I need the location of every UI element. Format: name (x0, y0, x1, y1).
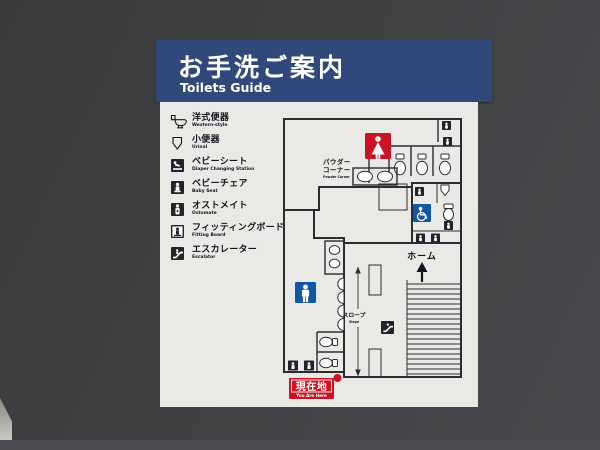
sign-title-japanese: お手洗ご案内 (178, 48, 346, 84)
up-arrow-icon (417, 262, 428, 282)
legend-label: オストメイト Ostomate (192, 202, 248, 217)
powder-corner-label-line1: パウダー (323, 157, 351, 166)
powder-corner-label-en: Powder Corner (323, 175, 350, 179)
legend-item-diaper-changing: ベビーシート Diaper Changing Station (170, 158, 288, 173)
legend-label: フィッティングボード Fitting Board (192, 224, 284, 239)
legend-label-en: Western-style (192, 124, 229, 129)
sign-header: お手洗ご案内 Toilets Guide (156, 40, 492, 102)
baby-seat-icon (415, 187, 424, 196)
sign-board: 洋式便器 Western-style 小便器 Urinal ベビーシート (160, 102, 478, 407)
womens-toilet-fixture (417, 154, 428, 175)
woman-icon (365, 133, 391, 159)
legend-label-ja: フィッティングボード (192, 224, 284, 233)
you-are-here-dot (334, 374, 342, 382)
fitting-board-icon (442, 121, 451, 130)
legend-label-ja: エスカレーター (192, 246, 257, 255)
diaper-changing-icon (170, 158, 189, 173)
western-toilet-icon (170, 114, 189, 129)
toilets-guide-sign-photo: お手洗ご案内 Toilets Guide 洋式便器 Western-style (0, 0, 600, 450)
womens-toilet-fixture (440, 154, 451, 175)
legend-item-fitting-board: フィッティングボード Fitting Board (170, 224, 288, 239)
fitting-board-icon (288, 361, 298, 371)
accessible-toilet-fixture (444, 204, 454, 221)
baby-seat-icon (304, 361, 314, 371)
legend-label: 小便器 Urinal (192, 136, 220, 151)
fitting-board-icon (170, 224, 189, 239)
mens-toilet-fixture (320, 358, 338, 368)
legend: 洋式便器 Western-style 小便器 Urinal ベビーシート (170, 114, 288, 268)
ostomate-icon (170, 202, 189, 217)
legend-label-en: Ostomate (192, 212, 248, 217)
ostomate-icon (443, 137, 452, 146)
legend-label: 洋式便器 Western-style (192, 114, 229, 129)
legend-item-ostomate: オストメイト Ostomate (170, 202, 288, 217)
legend-label-ja: オストメイト (192, 202, 248, 211)
legend-label-en: Baby Seat (192, 190, 248, 195)
fitting-board-icon (416, 234, 425, 243)
sign-title-english: Toilets Guide (180, 80, 271, 95)
slope-label-en: Slope (349, 320, 359, 324)
legend-label: ベビーチェア Baby Seat (192, 180, 248, 195)
legend-label-en: Fitting Board (192, 234, 284, 239)
legend-label-en: Escalator (192, 256, 257, 261)
slope-label: スロープ (343, 311, 366, 319)
mens-sinks (325, 241, 344, 274)
womens-toilet-fixture (395, 154, 406, 175)
legend-label-ja: 洋式便器 (192, 114, 229, 123)
platform-label: ホーム (407, 251, 437, 262)
floor-plan: パウダー コーナー Powder Corner (281, 106, 477, 406)
legend-item-western-style: 洋式便器 Western-style (170, 114, 288, 129)
ostomate-icon (444, 221, 453, 230)
stairs-treads (407, 284, 460, 374)
legend-label-en: Diaper Changing Station (192, 168, 254, 173)
legend-label-ja: ベビーシート (192, 158, 254, 167)
baby-seat-icon (170, 180, 189, 195)
legend-label: ベビーシート Diaper Changing Station (192, 158, 254, 173)
wheelchair-icon (413, 204, 431, 222)
pillar (369, 265, 381, 295)
you-are-here-label-en: You Are Here (295, 393, 327, 398)
escalator-icon (381, 321, 394, 334)
man-icon (295, 282, 316, 303)
legend-label-ja: 小便器 (192, 136, 220, 145)
escalator-icon (170, 246, 189, 261)
legend-label-ja: ベビーチェア (192, 180, 248, 189)
powder-corner-sinks (353, 168, 397, 185)
stairs-enclosure (344, 243, 461, 377)
wall-bottom-strip (0, 440, 600, 450)
legend-label: エスカレーター Escalator (192, 246, 257, 261)
legend-item-baby-seat: ベビーチェア Baby Seat (170, 180, 288, 195)
you-are-here-label: 現在地 (296, 380, 328, 393)
urinal-fixture (441, 185, 449, 196)
pillar (369, 349, 381, 377)
legend-item-urinal: 小便器 Urinal (170, 136, 288, 151)
legend-label-en: Urinal (192, 146, 220, 151)
mens-toilet-fixture (320, 337, 338, 347)
urinal-icon (170, 136, 189, 151)
powder-corner-label-line2: コーナー (323, 166, 351, 174)
diaper-changing-icon (431, 234, 440, 243)
womens-area (284, 119, 461, 210)
legend-item-escalator: エスカレーター Escalator (170, 246, 288, 261)
